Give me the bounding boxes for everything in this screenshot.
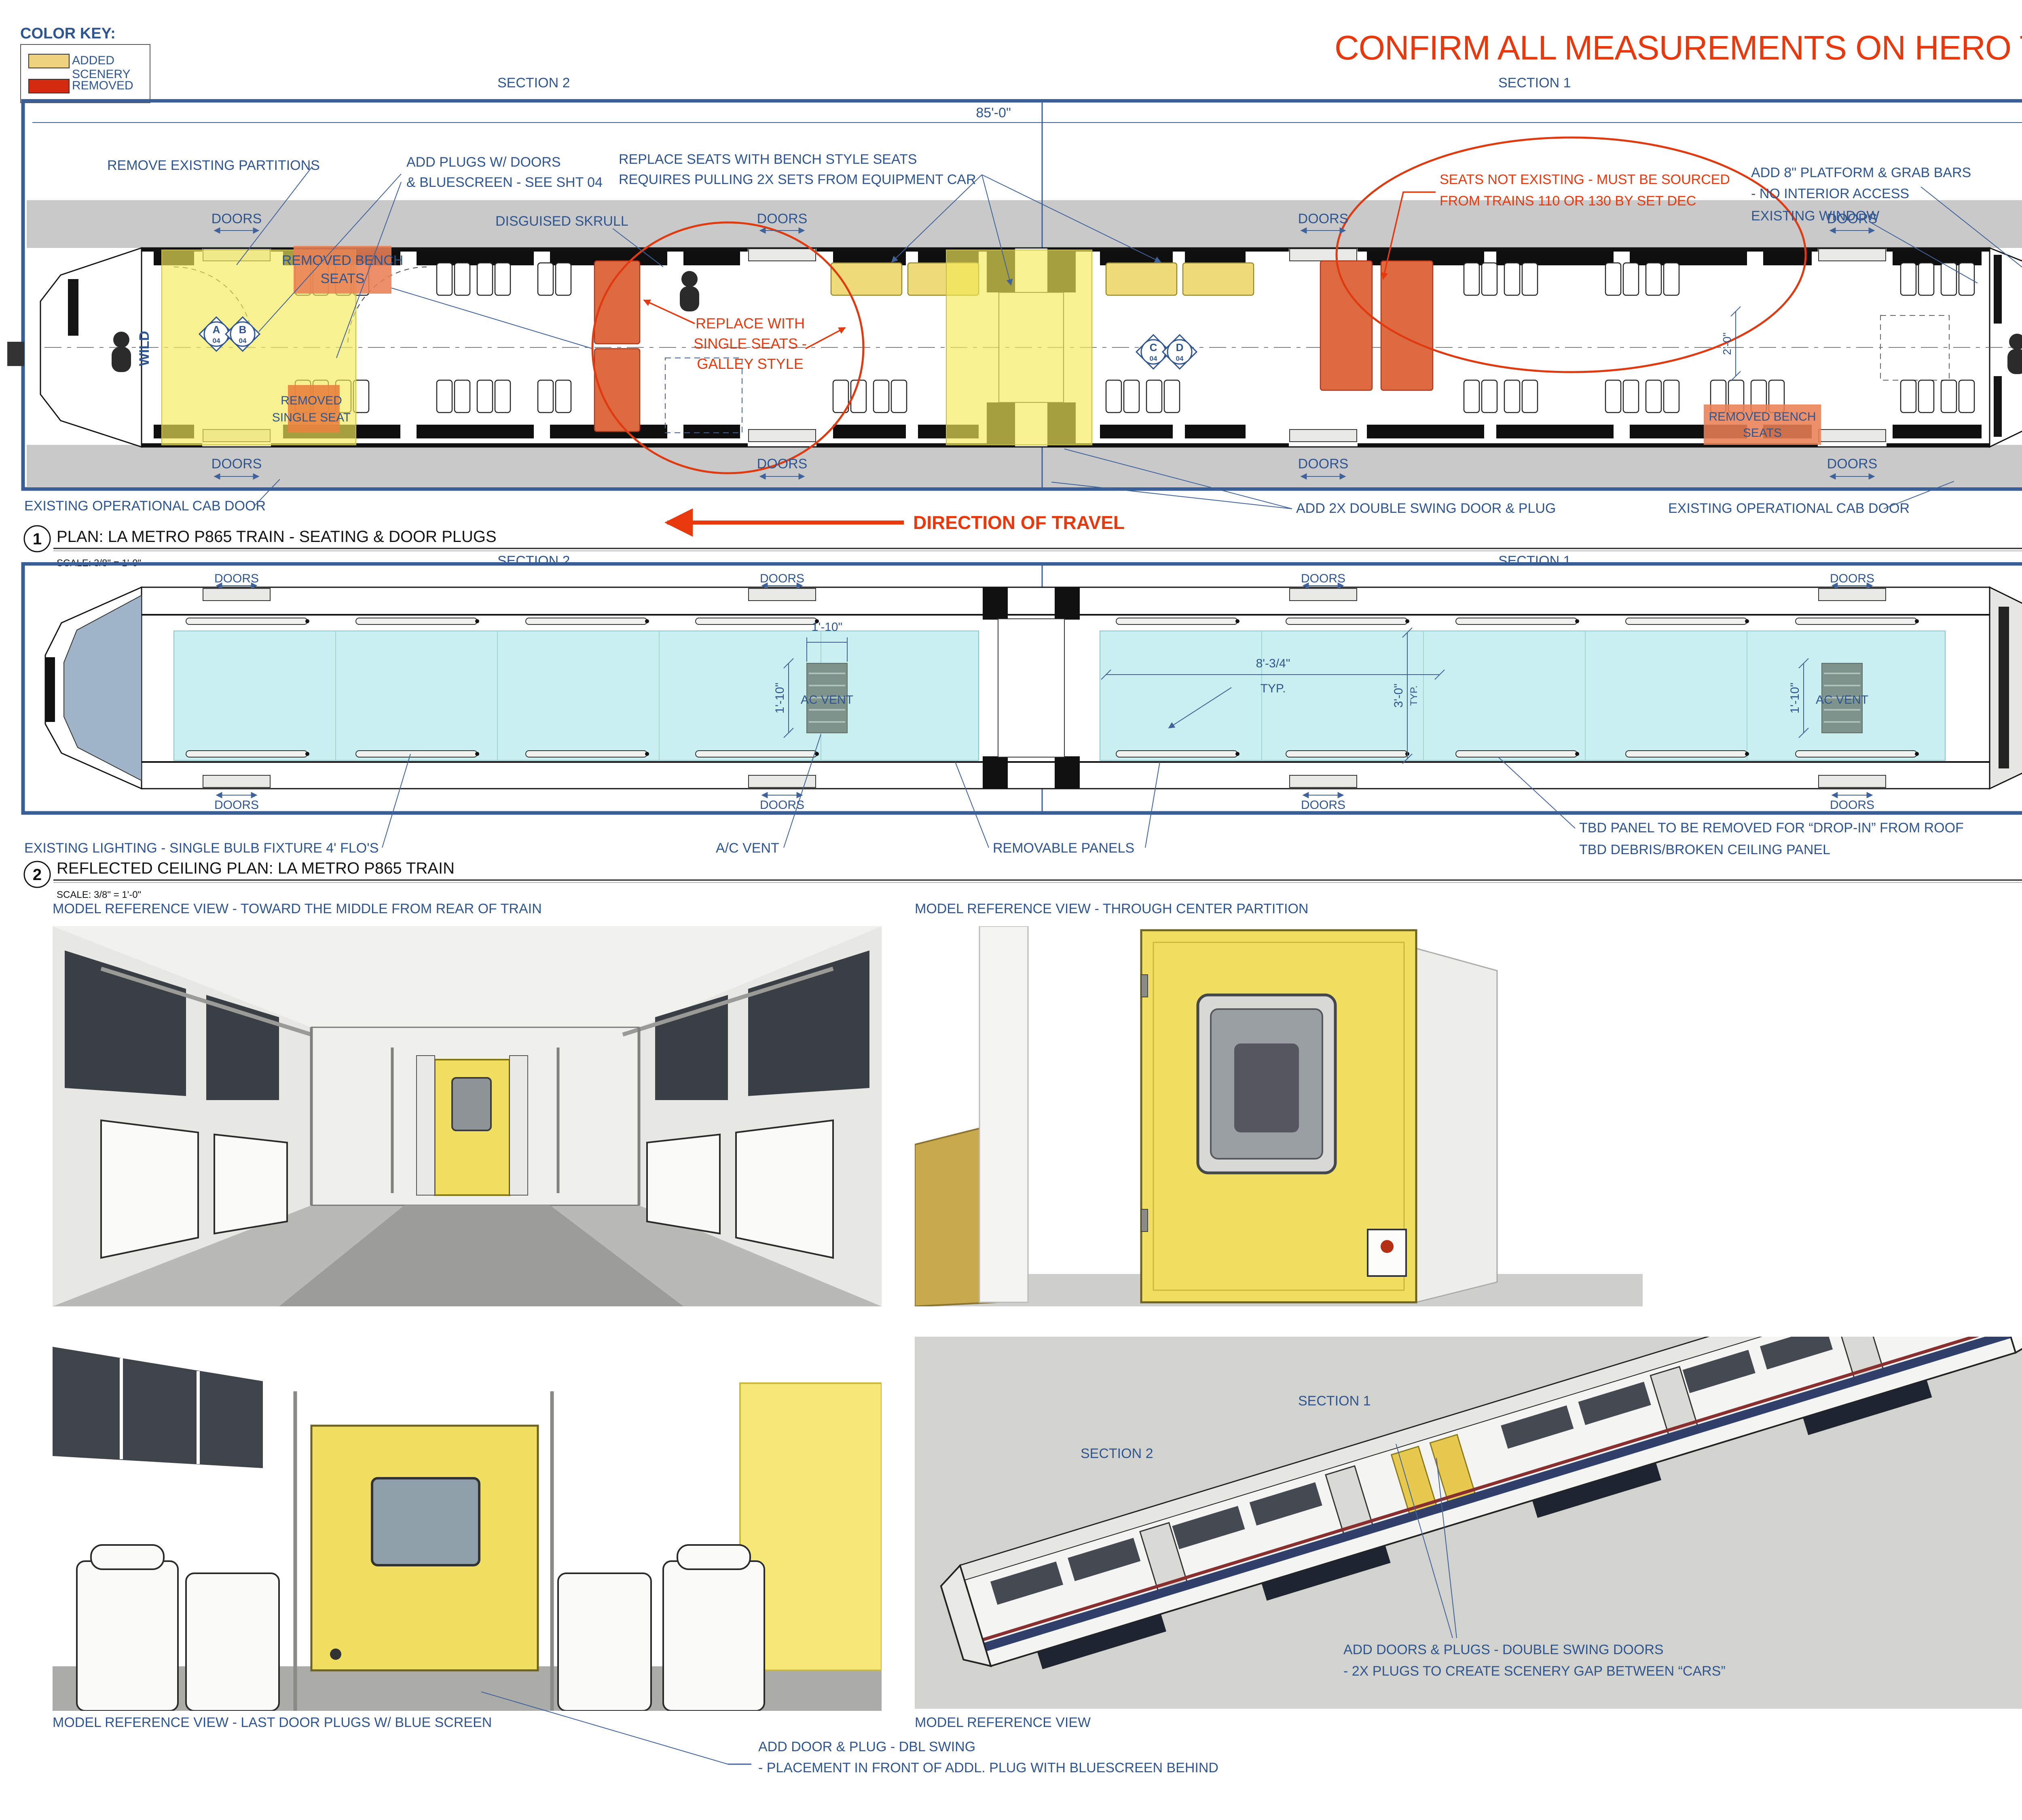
doors-label: DOORS	[1830, 572, 1874, 585]
note-replace-single-2: SINGLE SEATS -	[694, 335, 806, 352]
note-existing-window: EXISTING WINDOW	[1751, 208, 1879, 224]
removed-bench-right-2: SEATS	[1743, 426, 1782, 440]
view1-render	[53, 926, 882, 1306]
marker-d-sheet: 04	[1176, 355, 1184, 362]
callout2-scale: SCALE: 3/8" = 1'-0"	[57, 889, 141, 900]
color-key-title: COLOR KEY:	[20, 25, 150, 42]
bottom-note-1: ADD DOOR & PLUG - DBL SWING	[758, 1739, 975, 1755]
view2-render	[915, 926, 1643, 1306]
doors-label: DOORS	[760, 572, 804, 585]
note-ac-vent: A/C VENT	[716, 840, 779, 856]
wild-label: WILD	[137, 331, 152, 366]
ac-vent-label-right: AC VENT	[1816, 693, 1868, 707]
doors-label: DOORS	[1298, 211, 1349, 226]
view2-label: MODEL REFERENCE VIEW - THROUGH CENTER PA…	[915, 901, 1308, 917]
removed-label: REMOVED	[72, 79, 133, 93]
view1-label: MODEL REFERENCE VIEW - TOWARD THE MIDDLE…	[53, 901, 542, 917]
added-scenery-swatch	[28, 54, 70, 68]
removed-bench-left-2: SEATS	[321, 271, 365, 286]
note-replace-seats-2: REQUIRES PULLING 2X SETS FROM EQUIPMENT …	[619, 172, 976, 187]
removed-swatch	[28, 79, 70, 93]
dim-85ft: 85'-0"	[976, 105, 1011, 121]
marker-c: C	[1150, 341, 1157, 353]
plan2-train	[45, 587, 2022, 789]
note-skrull: DISGUISED SKRULL	[495, 214, 628, 229]
note-tbd-1: TBD PANEL TO BE REMOVED FOR “DROP-IN” FR…	[1579, 820, 1964, 836]
view3-render	[53, 1335, 882, 1711]
drawing-sheet: { "colorKey":{"title":"COLOR KEY:","adde…	[0, 0, 2022, 1820]
section1-top-label: SECTION 1	[1498, 75, 1571, 91]
doors-label: DOORS	[757, 456, 808, 472]
ac-vent-label-left: AC VENT	[801, 693, 853, 707]
removed-single-1: REMOVED	[281, 394, 342, 407]
color-key: COLOR KEY: ADDED SCENERY REMOVED	[20, 25, 150, 103]
plan2-ceiling-drawing: DOORS DOORS DOORS DOORS DOORS DOORS DOOR…	[0, 562, 2022, 902]
callout1-title: PLAN: LA METRO P865 TRAIN - SEATING & DO…	[57, 528, 497, 546]
color-key-box: ADDED SCENERY REMOVED	[20, 44, 150, 103]
dim-1-10-h: 1'-10"	[812, 620, 842, 634]
note-replace-seats-1: REPLACE SEATS WITH BENCH STYLE SEATS	[619, 152, 917, 167]
removed-bench-left-1: REMOVED BENCH	[282, 253, 403, 268]
doors-label: DOORS	[1298, 456, 1349, 472]
view4-render: SECTION 1 SECTION 2 ADD DOORS & PLUGS - …	[915, 1337, 2022, 1709]
doors-label: DOORS	[1301, 798, 1345, 812]
note-platform-1: ADD 8" PLATFORM & GRAB BARS	[1751, 165, 1971, 180]
callout2-title: REFLECTED CEILING PLAN: LA METRO P865 TR…	[57, 859, 455, 877]
view4-label: MODEL REFERENCE VIEW	[915, 1715, 1091, 1731]
callout1-number: 1	[33, 530, 42, 548]
warning-banner: CONFIRM ALL MEASUREMENTS ON HERO TRAIN B…	[1335, 28, 2022, 68]
iso-note-1: ADD DOORS & PLUGS - DOUBLE SWING DOORS	[1343, 1642, 1664, 1657]
dim-8-3-4: 8'-3/4"	[1256, 657, 1290, 670]
doors-label: DOORS	[214, 572, 259, 585]
iso-section2-label: SECTION 2	[1081, 1446, 1153, 1461]
note-platform-2: - NO INTERIOR ACCESS	[1751, 186, 1909, 201]
added-scenery-label: ADDED SCENERY	[72, 54, 150, 81]
doors-label: DOORS	[757, 211, 808, 226]
cab-door-right-label: EXISTING OPERATIONAL CAB DOOR	[1668, 501, 1910, 516]
dim-3-0: 3'-0"	[1392, 684, 1405, 708]
doors-label: DOORS	[214, 798, 259, 812]
dim-2-0: 2'-0"	[1721, 332, 1733, 355]
dim-1-10-v-right: 1'-10"	[1788, 683, 1802, 713]
iso-note-2: - 2X PLUGS TO CREATE SCENERY GAP BETWEEN…	[1343, 1663, 1726, 1679]
cab-door-left-label: EXISTING OPERATIONAL CAB DOOR	[24, 498, 266, 514]
note-removable-panels: REMOVABLE PANELS	[993, 840, 1134, 856]
doors-label: DOORS	[1830, 798, 1874, 812]
marker-d: D	[1176, 341, 1184, 353]
doors-label: DOORS	[212, 456, 262, 472]
view3-label: MODEL REFERENCE VIEW - LAST DOOR PLUGS W…	[53, 1715, 492, 1731]
note-seats-not-1: SEATS NOT EXISTING - MUST BE SOURCED	[1440, 172, 1730, 187]
bottom-note-2: - PLACEMENT IN FRONT OF ADDL. PLUG WITH …	[758, 1760, 1218, 1776]
doors-label: DOORS	[1301, 572, 1345, 585]
doors-label: DOORS	[212, 211, 262, 226]
removed-bench-right-1: REMOVED BENCH	[1709, 410, 1816, 423]
doors-label: DOORS	[1827, 456, 1878, 472]
marker-a-sheet: 04	[213, 337, 220, 345]
plan1-seating-drawing: 85'-0"	[0, 99, 2022, 568]
direction-of-travel: DIRECTION OF TRAVEL	[913, 512, 1125, 533]
iso-section1-label: SECTION 1	[1298, 1393, 1371, 1409]
marker-a: A	[213, 324, 220, 336]
dim-3-0-typ: TYP.	[1409, 686, 1419, 706]
view2-yellow-door	[1141, 930, 1416, 1302]
note-add-plugs-2: & BLUESCREEN - SEE SHT 04	[406, 175, 603, 190]
note-remove-partitions: REMOVE EXISTING PARTITIONS	[107, 158, 320, 173]
view3-yellow-partition	[311, 1426, 538, 1670]
note-add-plugs-1: ADD PLUGS W/ DOORS	[406, 154, 561, 170]
note-replace-single-1: REPLACE WITH	[696, 315, 805, 332]
section2-top-label: SECTION 2	[497, 75, 570, 91]
marker-b: B	[239, 324, 247, 336]
marker-c-sheet: 04	[1150, 355, 1157, 362]
add-2x-door-label: ADD 2X DOUBLE SWING DOOR & PLUG	[1296, 501, 1556, 516]
dim-8-3-4-typ: TYP.	[1261, 682, 1286, 695]
marker-b-sheet: 04	[239, 337, 247, 345]
callout2-number: 2	[33, 866, 42, 884]
view1-yellow-door	[417, 1056, 528, 1195]
note-replace-single-3: GALLEY STYLE	[697, 356, 803, 372]
dim-1-10-v-left: 1'-10"	[773, 683, 787, 713]
note-seats-not-2: FROM TRAINS 110 OR 130 BY SET DEC	[1440, 193, 1696, 209]
note-tbd-2: TBD DEBRIS/BROKEN CEILING PANEL	[1579, 842, 1830, 857]
removed-single-2: SINGLE SEAT	[272, 411, 351, 424]
note-lighting: EXISTING LIGHTING - SINGLE BULB FIXTURE …	[24, 840, 379, 856]
